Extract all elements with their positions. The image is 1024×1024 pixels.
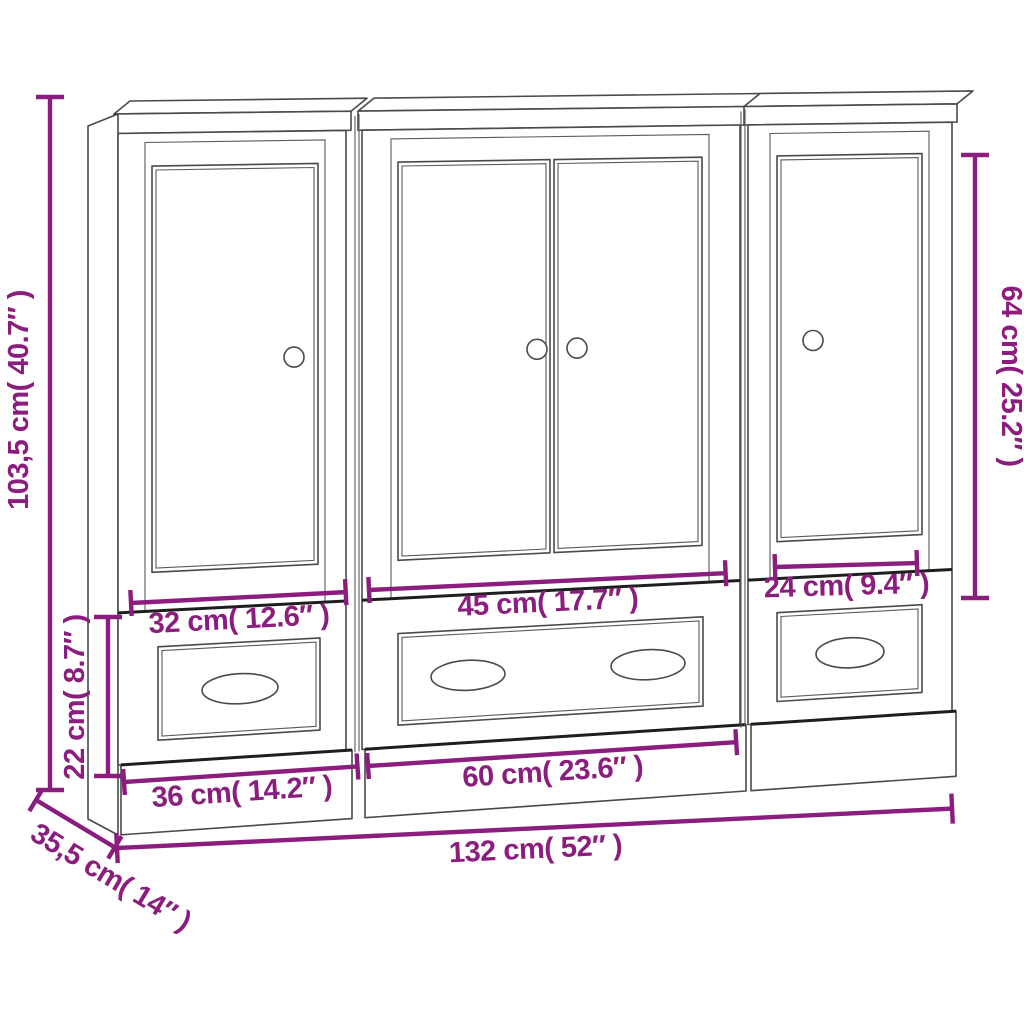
- middle-cabinet-door-knob: [567, 338, 587, 358]
- dim-label-total-width: 132 cm( 52″ ): [448, 829, 623, 869]
- dim-label-right-door-width: 24 cm( 9.4″ ): [763, 568, 929, 605]
- dim-total-height: 103,5 cm( 40.7″ ): [3, 97, 64, 790]
- dim-tick: [367, 753, 369, 779]
- right-cabinet-door-panel: [777, 154, 922, 542]
- middle-cabinet-door-knob: [527, 339, 547, 359]
- cabinet-line-art: [88, 91, 973, 835]
- dim-tick: [725, 560, 726, 586]
- dim-tick: [951, 794, 952, 824]
- furniture-dimension-diagram: 103,5 cm( 40.7″ ) 22 cm( 8.7″ ) 64 cm( 2…: [0, 0, 1024, 1024]
- dim-tick: [345, 579, 346, 605]
- dim-right-door-height: 64 cm( 25.2″ ): [961, 155, 1024, 598]
- left-cabinet-side-panel: [88, 114, 118, 835]
- middle-cabinet-door-panel: [398, 160, 550, 561]
- dim-tick: [123, 769, 125, 795]
- right-cabinet-door-knob: [803, 331, 823, 351]
- dim-label-depth: 35,5 cm( 14″ ): [25, 817, 197, 938]
- dim-label-base-section-height: 22 cm( 8.7″ ): [59, 614, 91, 779]
- dim-label-right-door-height: 64 cm( 25.2″ ): [995, 286, 1024, 467]
- dim-tick: [735, 729, 737, 755]
- diagram-canvas: 103,5 cm( 40.7″ ) 22 cm( 8.7″ ) 64 cm( 2…: [0, 0, 1024, 1024]
- dim-tick: [357, 754, 359, 780]
- dim-tick: [130, 590, 131, 616]
- left-cabinet-door-knob: [284, 347, 304, 367]
- dim-label-total-height: 103,5 cm( 40.7″ ): [3, 290, 35, 510]
- dim-tick: [368, 577, 369, 603]
